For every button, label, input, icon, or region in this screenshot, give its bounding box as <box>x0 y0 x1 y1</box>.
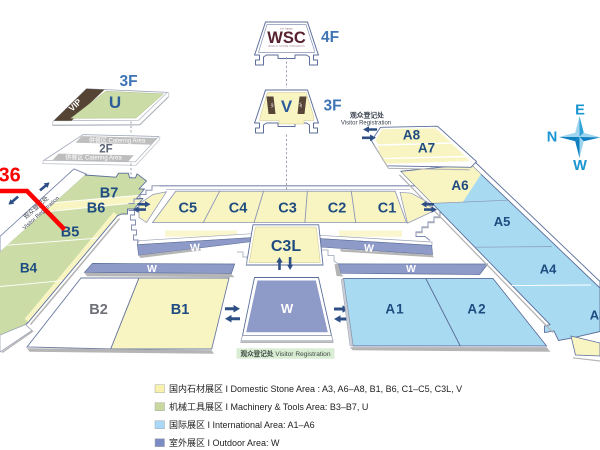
svg-text:3F: 3F <box>324 98 342 115</box>
svg-text:W: W <box>281 301 294 316</box>
svg-text:国际展区 I International Area: A1: 国际展区 I International Area: A1–A6 <box>169 420 315 430</box>
svg-text:VIP: VIP <box>298 102 303 108</box>
svg-text:36: 36 <box>0 165 21 187</box>
svg-text:4F: 4F <box>321 29 339 46</box>
svg-text:机械工具展区 I Machinery & Tools Are: 机械工具展区 I Machinery & Tools Area: B3–B7, … <box>169 401 368 412</box>
svg-text:B2: B2 <box>89 302 108 318</box>
svg-text:A3: A3 <box>590 308 600 323</box>
svg-text:E: E <box>575 103 585 119</box>
svg-text:WSC: WSC <box>267 29 306 47</box>
svg-text:C2: C2 <box>328 201 347 217</box>
svg-text:W: W <box>406 263 416 275</box>
svg-text:C3: C3 <box>278 201 297 217</box>
svg-text:A7: A7 <box>418 141 435 156</box>
svg-text:观众登记处: 观众登记处 <box>350 111 384 120</box>
svg-text:A6: A6 <box>451 178 469 193</box>
svg-text:WORLD STONE CONGRESS: WORLD STONE CONGRESS <box>268 46 305 48</box>
svg-text:国内石材展区 I Domestic Stone Area :: 国内石材展区 I Domestic Stone Area : A3, A6–A8… <box>169 383 462 394</box>
svg-text:C3L: C3L <box>271 238 301 255</box>
svg-text:2F: 2F <box>99 144 112 156</box>
svg-text:室外展区 I Outdoor Area: W: 室外展区 I Outdoor Area: W <box>169 437 280 448</box>
svg-text:B7: B7 <box>100 186 119 202</box>
svg-text:VIP: VIP <box>270 102 275 108</box>
svg-text:供餐区 Catering Area: 供餐区 Catering Area <box>65 154 122 162</box>
svg-text:A1: A1 <box>385 302 404 317</box>
svg-text:W: W <box>147 263 157 275</box>
svg-text:B1: B1 <box>171 302 190 318</box>
svg-text:C4: C4 <box>229 201 248 217</box>
svg-text:Visitor Registration: Visitor Registration <box>341 121 391 127</box>
svg-text:W: W <box>190 242 201 255</box>
svg-text:B4: B4 <box>20 261 38 276</box>
svg-text:3F: 3F <box>120 73 138 90</box>
svg-text:W: W <box>573 158 587 174</box>
svg-text:V: V <box>281 97 293 116</box>
svg-text:A4: A4 <box>540 262 557 277</box>
svg-text:观众登记处 Visitor Registration: 观众登记处 Visitor Registration <box>240 349 330 358</box>
svg-text:C5: C5 <box>179 201 198 217</box>
svg-text:A2: A2 <box>467 302 486 317</box>
svg-text:供餐区 Catering Area: 供餐区 Catering Area <box>89 136 146 144</box>
svg-text:C1: C1 <box>378 201 397 217</box>
svg-text:U: U <box>109 93 121 112</box>
svg-text:W: W <box>364 242 375 255</box>
svg-text:A5: A5 <box>494 214 511 229</box>
svg-text:N: N <box>547 130 558 146</box>
svg-text:B6: B6 <box>87 201 106 217</box>
